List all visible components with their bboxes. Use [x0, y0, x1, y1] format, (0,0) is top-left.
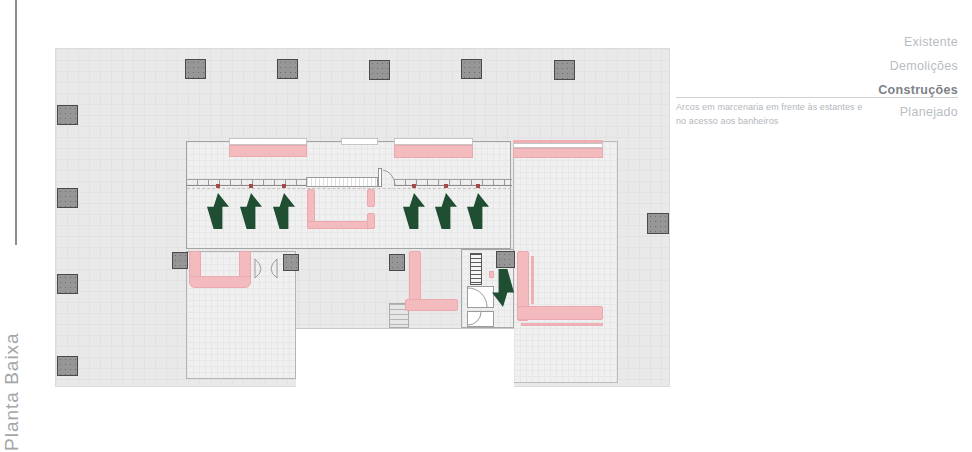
legend-divider [676, 97, 958, 98]
slide: Planta Baixa [0, 0, 972, 452]
stall-door-arc [468, 312, 481, 325]
legend-item-planejado[interactable]: Planejado [900, 105, 958, 119]
stall-door-arc [468, 288, 487, 307]
left-accent-line [15, 0, 17, 245]
door-arcs-overlay [56, 49, 669, 386]
butterfly-door [255, 259, 277, 278]
legend-item-demolicoes[interactable]: Demolições [890, 59, 958, 73]
legend-note: Arcos em marcenaria em frente às estante… [676, 101, 868, 128]
floor-plan [55, 48, 670, 387]
door-arc [383, 170, 395, 185]
page-title: Planta Baixa [1, 332, 23, 451]
legend-item-existente[interactable]: Existente [904, 35, 958, 49]
legend-item-construcoes[interactable]: Construções [878, 83, 958, 97]
